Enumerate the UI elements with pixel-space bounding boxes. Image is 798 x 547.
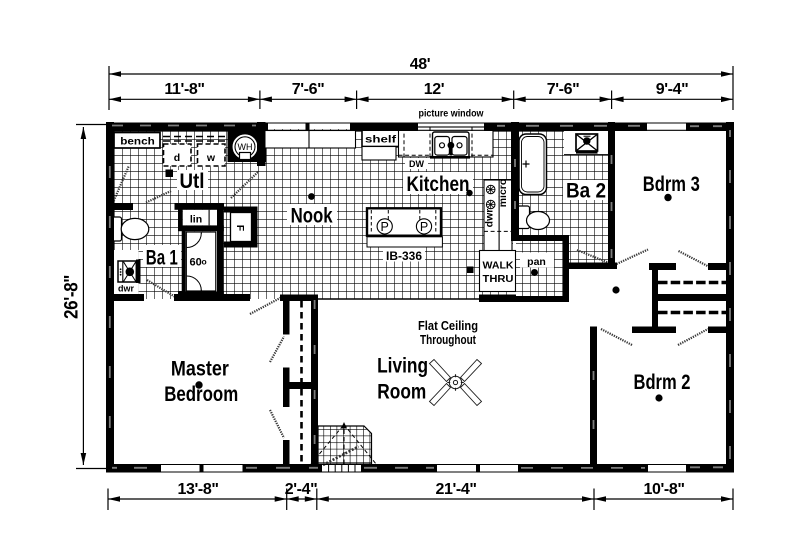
svg-text:26'-8": 26'-8" bbox=[62, 275, 83, 319]
svg-text:7'-6": 7'-6" bbox=[547, 81, 580, 98]
svg-text:Ba 2: Ba 2 bbox=[566, 180, 606, 203]
svg-text:48': 48' bbox=[410, 56, 430, 73]
svg-text:dwr: dwr bbox=[118, 284, 134, 294]
svg-text:Kitchen: Kitchen bbox=[407, 173, 470, 196]
svg-text:d: d bbox=[174, 152, 180, 164]
svg-text:DW: DW bbox=[409, 159, 424, 169]
svg-text:Bdrm 3: Bdrm 3 bbox=[643, 173, 700, 196]
svg-text:IB-336: IB-336 bbox=[386, 251, 422, 263]
svg-text:F: F bbox=[234, 225, 246, 232]
svg-text:Utl: Utl bbox=[180, 170, 205, 193]
svg-text:WALK: WALK bbox=[483, 260, 514, 272]
svg-text:Bdrm 2: Bdrm 2 bbox=[634, 371, 691, 394]
svg-text:bench: bench bbox=[120, 136, 155, 148]
svg-text:13'-8": 13'-8" bbox=[177, 481, 218, 498]
svg-text:shelf: shelf bbox=[365, 134, 397, 146]
svg-text:P: P bbox=[420, 220, 428, 234]
svg-text:P: P bbox=[381, 220, 389, 234]
svg-text:Room: Room bbox=[377, 381, 426, 404]
svg-text:2'-4": 2'-4" bbox=[285, 481, 318, 498]
svg-text:12': 12' bbox=[424, 81, 444, 98]
svg-text:o: o bbox=[202, 257, 207, 267]
svg-text:THRU: THRU bbox=[483, 273, 514, 285]
svg-text:WH: WH bbox=[238, 142, 253, 152]
svg-text:Nook: Nook bbox=[291, 205, 333, 228]
svg-text:10'-8": 10'-8" bbox=[643, 481, 684, 498]
svg-text:Master: Master bbox=[171, 357, 229, 380]
svg-text:60: 60 bbox=[190, 257, 202, 269]
svg-text:Ba 1: Ba 1 bbox=[146, 247, 178, 270]
svg-text:Throughout: Throughout bbox=[420, 332, 477, 347]
svg-text:7'-6": 7'-6" bbox=[292, 81, 325, 98]
svg-text:pan: pan bbox=[527, 256, 546, 268]
svg-text:21'-4": 21'-4" bbox=[435, 481, 476, 498]
svg-text:micro: micro bbox=[497, 179, 509, 208]
svg-text:w: w bbox=[206, 152, 216, 164]
svg-text:dwr: dwr bbox=[484, 209, 496, 228]
svg-text:picture window: picture window bbox=[419, 108, 485, 120]
svg-text:9'-4": 9'-4" bbox=[656, 81, 689, 98]
svg-text:11'-8": 11'-8" bbox=[164, 81, 204, 98]
svg-text:Living: Living bbox=[377, 355, 428, 378]
svg-text:lin: lin bbox=[190, 214, 202, 226]
svg-text:Flat Ceiling: Flat Ceiling bbox=[418, 318, 478, 333]
